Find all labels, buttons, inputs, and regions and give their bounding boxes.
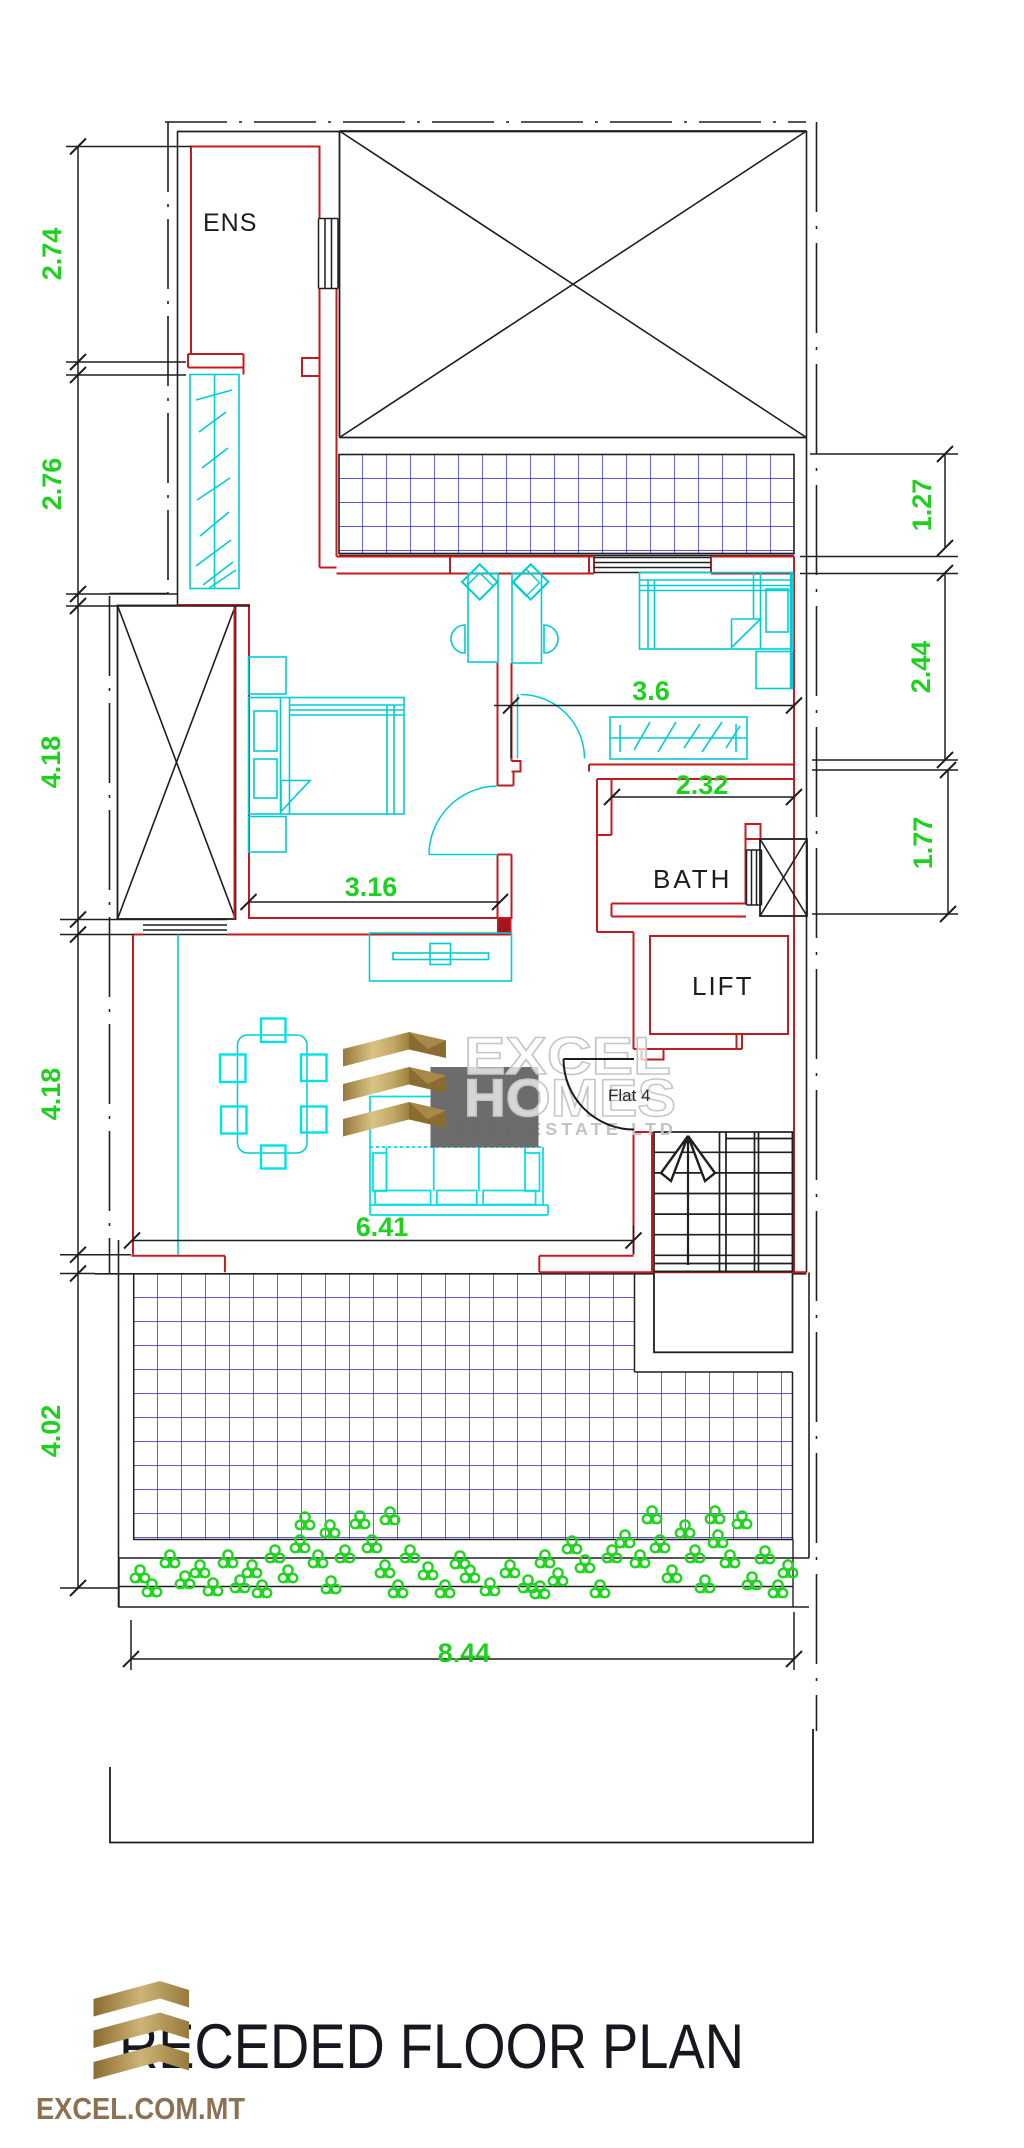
- svg-text:Flat 4: Flat 4: [608, 1086, 651, 1105]
- svg-text:EXCEL.COM.MT: EXCEL.COM.MT: [36, 2091, 245, 2126]
- svg-text:1.27: 1.27: [907, 479, 937, 532]
- svg-text:4.18: 4.18: [36, 736, 66, 789]
- svg-text:1.77: 1.77: [908, 817, 938, 870]
- svg-text:2.76: 2.76: [37, 458, 67, 511]
- svg-text:4.02: 4.02: [36, 1405, 66, 1458]
- svg-text:6.41: 6.41: [356, 1212, 409, 1242]
- svg-text:BATH: BATH: [653, 864, 732, 894]
- svg-text:4.18: 4.18: [36, 1068, 66, 1121]
- svg-text:2.32: 2.32: [676, 770, 729, 800]
- svg-text:RECEDED FLOOR PLAN: RECEDED FLOOR PLAN: [119, 2012, 744, 2082]
- svg-text:2.74: 2.74: [37, 228, 67, 281]
- svg-text:ENS: ENS: [203, 209, 257, 237]
- svg-text:LIFT: LIFT: [692, 971, 753, 1001]
- svg-text:2.44: 2.44: [906, 641, 936, 694]
- svg-text:3.16: 3.16: [345, 872, 398, 902]
- svg-text:8.44: 8.44: [438, 1638, 491, 1668]
- svg-text:3.6: 3.6: [632, 676, 670, 706]
